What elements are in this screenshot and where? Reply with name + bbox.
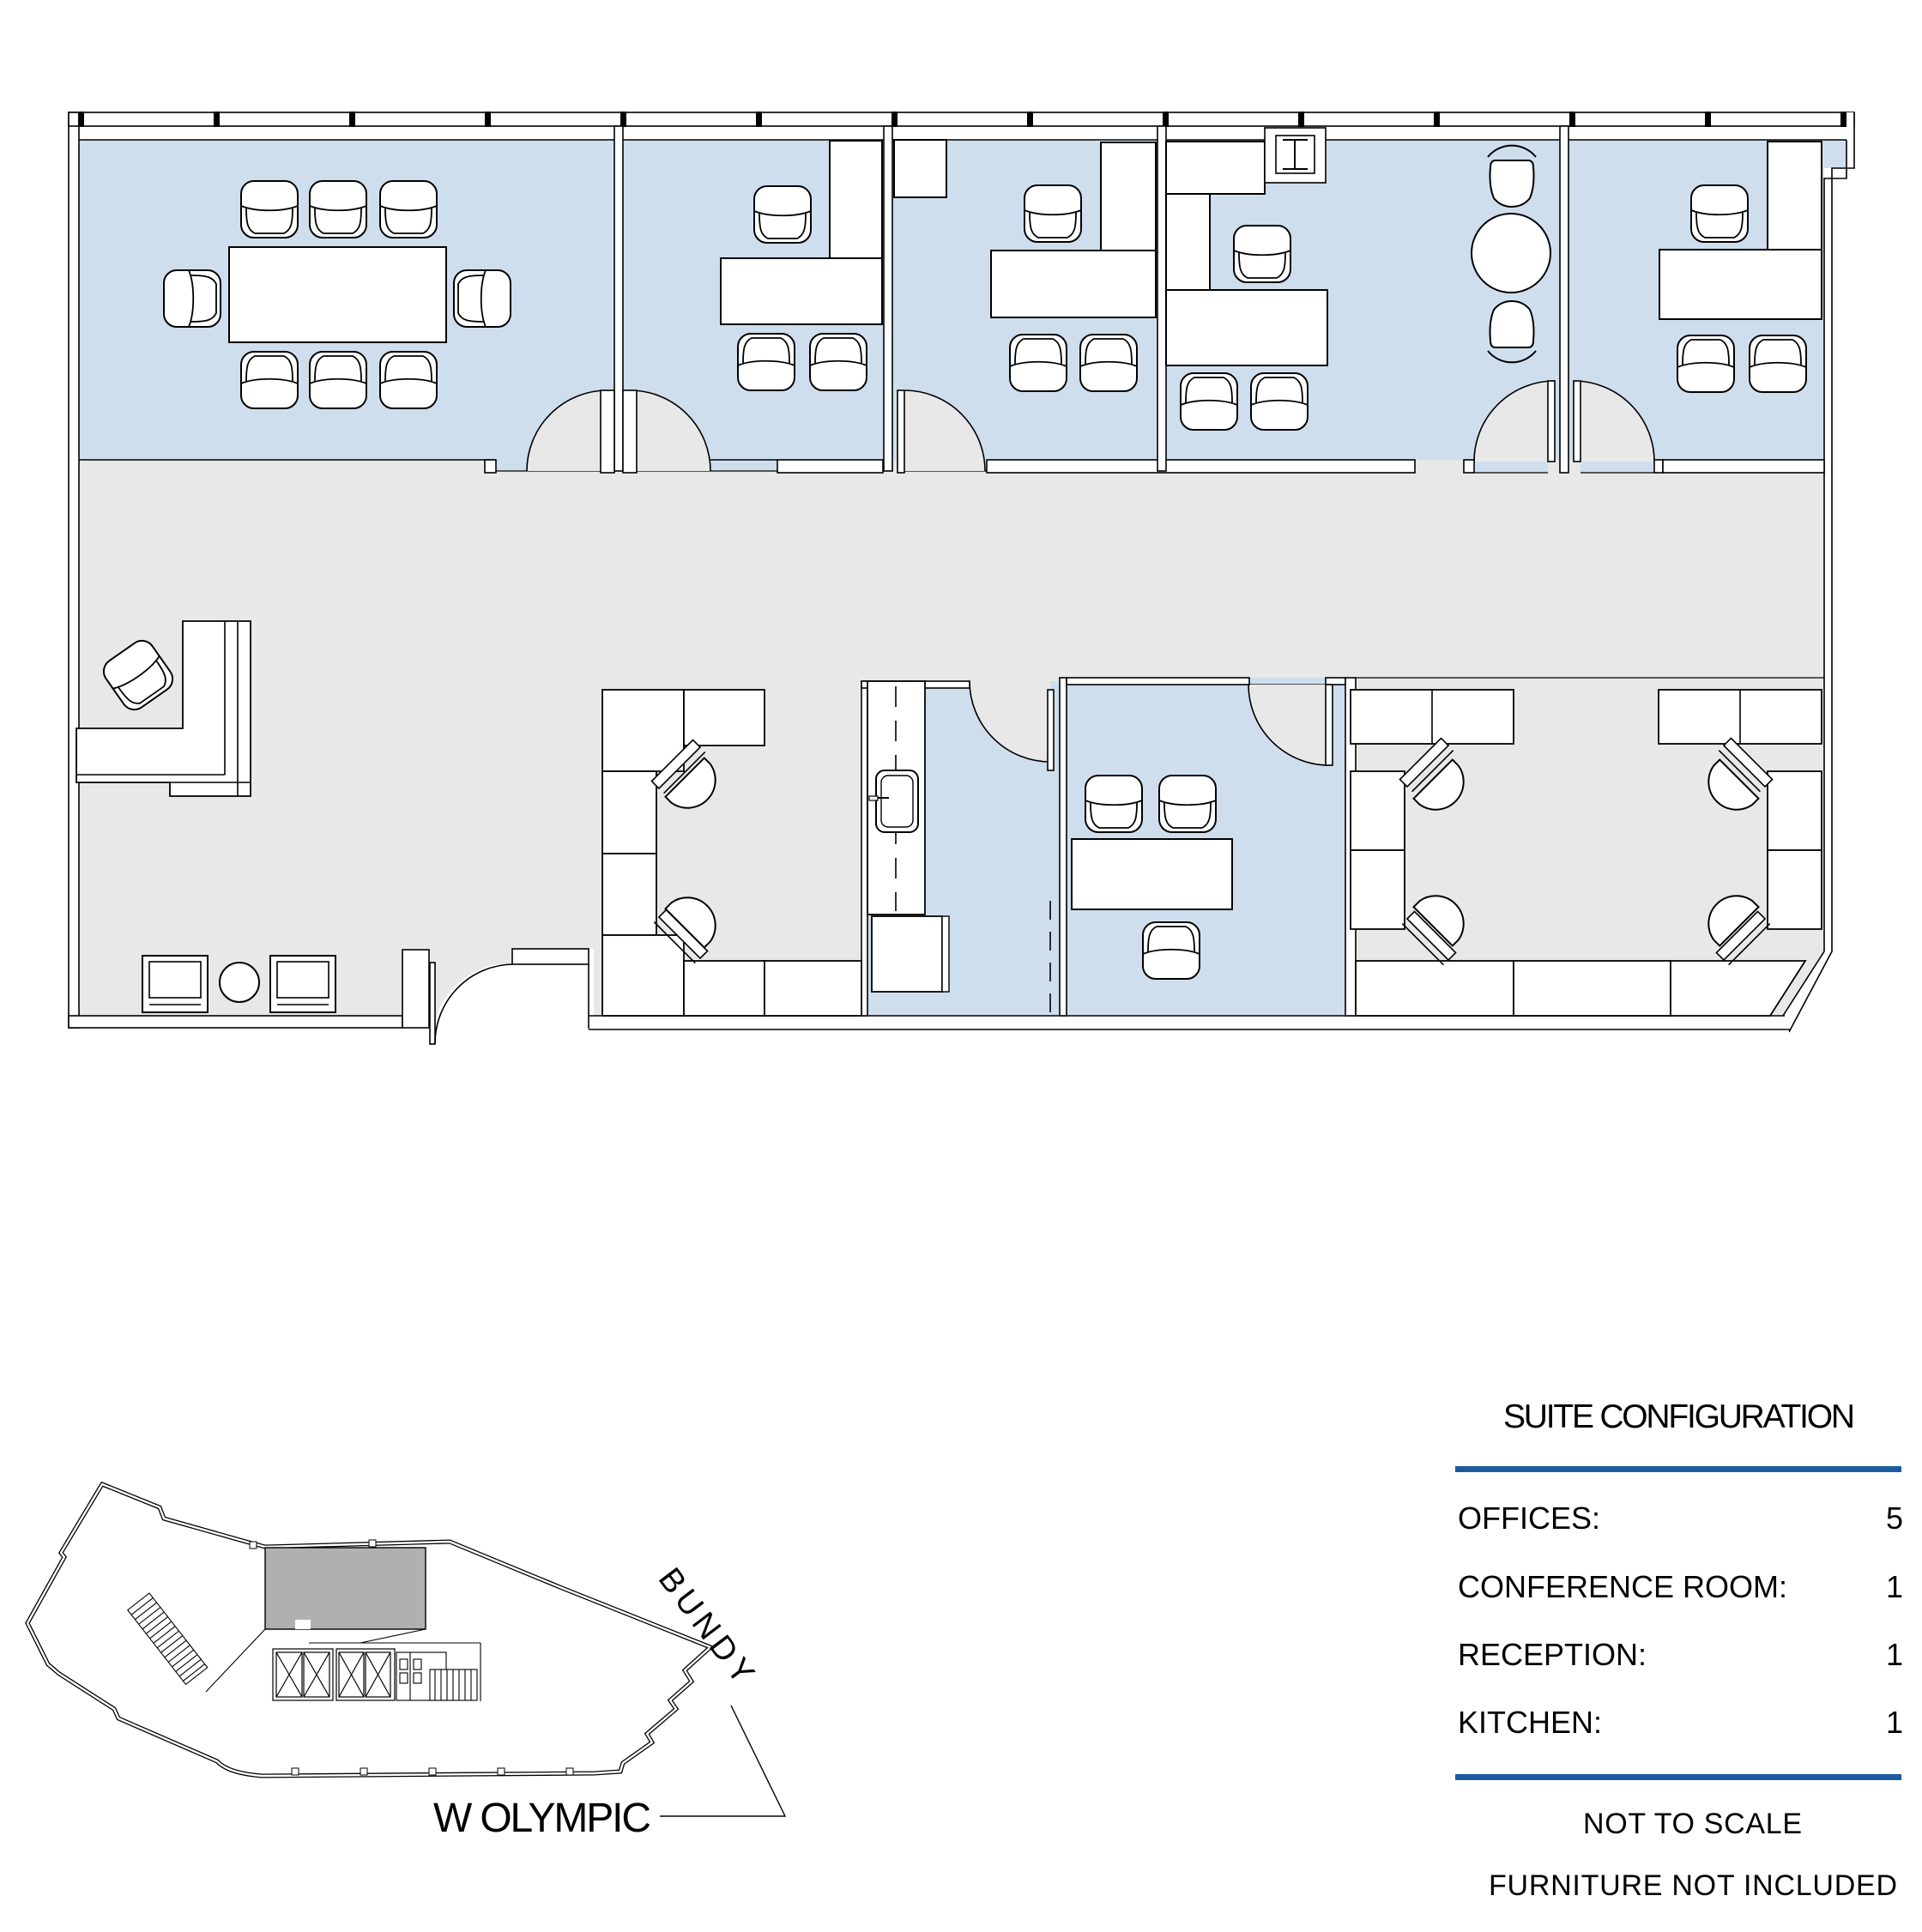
svg-text:1: 1 <box>1886 1569 1903 1604</box>
svg-text:FURNITURE NOT INCLUDED: FURNITURE NOT INCLUDED <box>1489 1869 1897 1902</box>
svg-text:SUITE CONFIGURATION: SUITE CONFIGURATION <box>1503 1398 1855 1435</box>
svg-text:NOT TO SCALE: NOT TO SCALE <box>1583 1808 1802 1840</box>
svg-text:RECEPTION:: RECEPTION: <box>1458 1637 1647 1672</box>
svg-text:KITCHEN:: KITCHEN: <box>1458 1705 1602 1740</box>
svg-text:OFFICES:: OFFICES: <box>1458 1500 1600 1536</box>
svg-text:CONFERENCE ROOM:: CONFERENCE ROOM: <box>1458 1569 1787 1604</box>
svg-text:1: 1 <box>1886 1705 1903 1740</box>
svg-text:1: 1 <box>1886 1637 1903 1672</box>
svg-text:W OLYMPIC: W OLYMPIC <box>433 1796 651 1841</box>
svg-text:5: 5 <box>1886 1500 1903 1536</box>
